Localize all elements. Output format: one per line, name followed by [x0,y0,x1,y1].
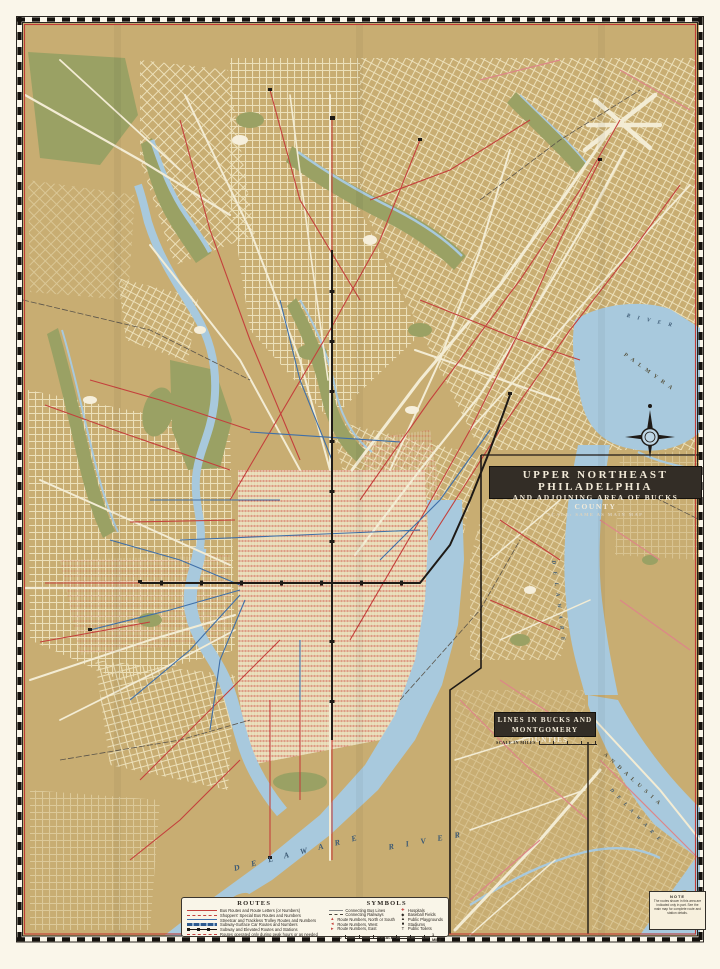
connecting-bus-line-sample [329,910,343,911]
red-solid-line-sample [187,910,217,911]
legend-symbols-title: SYMBOLS [329,900,444,907]
connecting-railway-sample [329,914,343,915]
public-toilet-icon: T [400,927,406,931]
legend-scale-bar: 0 SCALE 1 MILE [339,932,444,942]
legend-row-peak-hours: Routes operated only during peak hours o… [187,932,321,937]
bucks-title-line1: LINES IN BUCKS AND [495,715,595,725]
scale-one-mile: 1 MILE [432,932,444,942]
scale-caption: SCALE [380,935,393,940]
inset-title-bucks-montgomery: LINES IN BUCKS AND MONTGOMERY COUNTIES [494,712,596,737]
legend-label: Routes operated only during peak hours o… [220,932,318,937]
inset-title-scale: SCALE: SAME AS MAIN MAP [490,511,701,518]
symbols-left-list: Connecting Bus Lines Connecting Railways… [329,908,395,931]
symbols-right-list: ✚ Hospitals ◆ Baseball Fields ▲ Public P… [400,908,443,931]
scale-rule-left [345,935,378,939]
route-number-east-icon: ► [329,927,335,931]
inset-title-line1: UPPER NORTHEAST PHILADELPHIA [490,469,701,493]
legend-label: Route Numbers, East [337,926,376,931]
map-sheet: D E L A W A R E R I V E R R I V E R D E … [0,0,720,969]
inset-title-upper-northeast: UPPER NORTHEAST PHILADELPHIA AND ADJOINI… [489,466,702,499]
legend-routes-title: ROUTES [187,900,321,907]
bucks-scale-label: SCALE IN MILES [496,740,536,745]
blue-banded-line-sample [187,923,217,926]
bucks-scale-rule [539,741,597,745]
note-box: NOTE The routes shown in this area are i… [649,891,706,930]
note-body: The routes shown in this area are indica… [653,899,702,915]
scale-zero: 0 [339,935,341,940]
legend-routes-column: ROUTES Bus Routes and Route Letters (or … [187,900,321,935]
red-dashed-line-sample [187,915,217,916]
scale-rule-right [396,935,429,939]
legend-symbols-column: SYMBOLS Connecting Bus Lines Connecting … [329,900,444,935]
bucks-scale-bar: SCALE IN MILES [496,740,597,745]
blue-solid-line-sample [187,919,217,920]
inset-title-line2: AND ADJOINING AREA OF BUCKS COUNTY [490,493,701,511]
black-station-line-sample [187,928,217,932]
red-short-dash-sample [187,934,217,935]
legend-label: Public Toilets [408,926,432,931]
legend-box: ROUTES Bus Routes and Route Letters (or … [181,897,449,937]
